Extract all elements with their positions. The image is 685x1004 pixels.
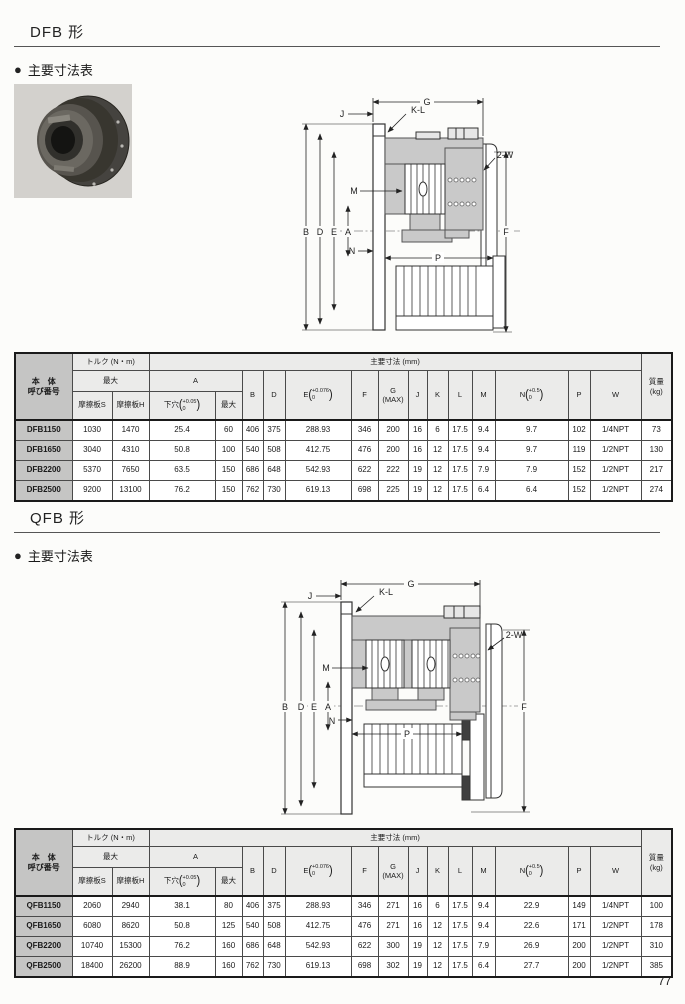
dim-value-cell: 1/4NPT (590, 896, 641, 917)
dim-value-cell: 16 (408, 420, 427, 441)
dim-value-cell: 222 (378, 461, 408, 481)
section-title-qfb: QFB 形 (30, 507, 85, 528)
leader-KL (356, 596, 374, 612)
dim-value-cell: 271 (378, 896, 408, 917)
dim-value-cell: 3040 (72, 441, 112, 461)
dim-value-cell: 698 (351, 481, 378, 502)
dim-value-cell: 1470 (112, 420, 149, 441)
dim-value-cell: 346 (351, 896, 378, 917)
dim-value-cell: 17.5 (448, 896, 472, 917)
dim-value-cell: 10740 (72, 937, 112, 957)
col-header-d: D (263, 847, 285, 897)
dim-value-cell: 17.5 (448, 937, 472, 957)
dim-value-cell: 9.4 (472, 917, 495, 937)
dim-value-cell: 17.5 (448, 420, 472, 441)
dim-value-cell: 406 (242, 420, 263, 441)
dim-value-cell: 288.93 (285, 420, 351, 441)
dim-value-cell: 622 (351, 937, 378, 957)
qfb-table-body: QFB11502060294038.180406375288.933462711… (15, 896, 672, 977)
dim-value-cell: 274 (641, 481, 672, 502)
dim-value-cell: 7650 (112, 461, 149, 481)
col-header-model: 本 体 呼び番号 (15, 353, 72, 420)
dim-value-cell: 19 (408, 957, 427, 978)
dim-label-m: M (350, 186, 358, 196)
dim-value-cell: 119 (568, 441, 590, 461)
dim-label-p: P (435, 253, 441, 263)
dim-value-cell: 17.5 (448, 441, 472, 461)
dim-value-cell: 300 (378, 937, 408, 957)
bolt-detail (448, 128, 478, 139)
table-row: QFB2500184002620088.9160762730619.136983… (15, 957, 672, 978)
dim-value-cell: 9.4 (472, 420, 495, 441)
col-group-max-torque: 最大 (72, 371, 149, 392)
dim-value-cell: 508 (263, 917, 285, 937)
dim-value-cell: 508 (263, 441, 285, 461)
dim-value-cell: 50.8 (149, 917, 215, 937)
col-group-max-torque: 最大 (72, 847, 149, 868)
dim-value-cell: 648 (263, 937, 285, 957)
dim-value-cell: 150 (215, 481, 242, 502)
qfb-cross-section-drawing: G J K-L 2-W B D E A N P M F (276, 572, 534, 824)
table-row: QFB11502060294038.180406375288.933462711… (15, 896, 672, 917)
leader-KL (388, 114, 406, 132)
dim-value-cell: 375 (263, 420, 285, 441)
dim-value-cell: 375 (263, 896, 285, 917)
col-header-a-max: 最大 (215, 868, 242, 897)
dim-label-e: E (311, 702, 317, 712)
dim-label-n: N (329, 716, 336, 726)
dim-value-cell: 200 (378, 441, 408, 461)
model-label: DFB2500 (15, 481, 72, 502)
dim-value-cell: 310 (641, 937, 672, 957)
dim-label-g: G (407, 579, 414, 589)
dim-value-cell: 130 (641, 441, 672, 461)
dim-value-cell: 7.9 (472, 937, 495, 957)
dim-value-cell: 1/2NPT (590, 481, 641, 502)
col-header-friction-s: 摩擦板S (72, 392, 112, 421)
bullet-icon: ● (14, 548, 22, 563)
dim-value-cell: 762 (242, 481, 263, 502)
col-header-p: P (568, 847, 590, 897)
col-group-dimensions: 主要寸法 (mm) (149, 829, 641, 847)
col-header-m: M (472, 847, 495, 897)
dim-value-cell: 6.4 (472, 481, 495, 502)
col-header-n: N(+0.50) (495, 847, 568, 897)
dim-value-cell: 80 (215, 896, 242, 917)
dim-value-cell: 152 (568, 481, 590, 502)
col-header-g: G (MAX) (378, 371, 408, 421)
dim-value-cell: 12 (427, 481, 448, 502)
dim-value-cell: 160 (215, 957, 242, 978)
title-underline (14, 532, 660, 533)
dim-label-j: J (340, 109, 345, 119)
subsection-heading-dimensions: ● 主要寸法表 (14, 546, 93, 565)
dim-value-cell: 540 (242, 917, 263, 937)
dim-value-cell: 6.4 (495, 481, 568, 502)
dim-value-cell: 9200 (72, 481, 112, 502)
dim-label-n: N (349, 246, 356, 256)
dim-value-cell: 7.9 (495, 461, 568, 481)
dim-label-f: F (503, 227, 509, 237)
dim-value-cell: 1/2NPT (590, 957, 641, 978)
dim-value-cell: 412.75 (285, 441, 351, 461)
dim-value-cell: 542.93 (285, 461, 351, 481)
model-label: QFB2200 (15, 937, 72, 957)
col-header-n: N(+0.50) (495, 371, 568, 421)
dim-label-d: D (317, 227, 324, 237)
dfb-cross-section-drawing: G J K-L 2-W B D E A N P M F (298, 88, 526, 346)
dim-label-d: D (298, 702, 305, 712)
dim-value-cell: 17.5 (448, 481, 472, 502)
dim-value-cell: 73 (641, 420, 672, 441)
col-group-torque: トルク (N・m) (72, 829, 149, 847)
dim-value-cell: 63.5 (149, 461, 215, 481)
dim-value-cell: 9.7 (495, 441, 568, 461)
dim-value-cell: 12 (427, 461, 448, 481)
dim-value-cell: 762 (242, 957, 263, 978)
dim-value-cell: 619.13 (285, 481, 351, 502)
col-header-g: G (MAX) (378, 847, 408, 897)
table-row: DFB11501030147025.460406375288.933462001… (15, 420, 672, 441)
dim-value-cell: 150 (215, 461, 242, 481)
dim-value-cell: 730 (263, 957, 285, 978)
table-row: DFB250092001310076.2150762730619.1369822… (15, 481, 672, 502)
model-label: DFB2200 (15, 461, 72, 481)
dim-value-cell: 225 (378, 481, 408, 502)
col-header-friction-h: 摩擦板H (112, 392, 149, 421)
dim-value-cell: 1/2NPT (590, 937, 641, 957)
dim-value-cell: 152 (568, 461, 590, 481)
dim-value-cell: 22.9 (495, 896, 568, 917)
dim-value-cell: 15300 (112, 937, 149, 957)
dim-value-cell: 50.8 (149, 441, 215, 461)
col-group-dimensions: 主要寸法 (mm) (149, 353, 641, 371)
col-header-m: M (472, 371, 495, 421)
dim-value-cell: 171 (568, 917, 590, 937)
col-header-mass: 質量 (kg) (641, 353, 672, 420)
col-header-mass: 質量 (kg) (641, 829, 672, 896)
dim-value-cell: 412.75 (285, 917, 351, 937)
dim-value-cell: 6080 (72, 917, 112, 937)
dim-value-cell: 16 (408, 917, 427, 937)
dim-value-cell: 730 (263, 481, 285, 502)
dim-label-b: B (303, 227, 309, 237)
dim-value-cell: 200 (568, 957, 590, 978)
dim-value-cell: 19 (408, 461, 427, 481)
table-row: DFB22005370765063.5150686648542.93622222… (15, 461, 672, 481)
dim-value-cell: 17.5 (448, 461, 472, 481)
dim-value-cell: 16 (408, 441, 427, 461)
dim-value-cell: 6.4 (472, 957, 495, 978)
dim-value-cell: 25.4 (149, 420, 215, 441)
subsection-label: 主要寸法表 (28, 60, 93, 79)
dim-value-cell: 619.13 (285, 957, 351, 978)
dim-value-cell: 648 (263, 461, 285, 481)
col-header-w: W (590, 847, 641, 897)
dim-value-cell: 8620 (112, 917, 149, 937)
dim-value-cell: 178 (641, 917, 672, 937)
col-header-pilot-hole: 下穴(+0.050) (149, 392, 215, 421)
dim-value-cell: 476 (351, 441, 378, 461)
dim-label-j: J (308, 591, 313, 601)
dim-value-cell: 9.4 (472, 441, 495, 461)
col-header-e: E(+0.0760) (285, 847, 351, 897)
col-header-k: K (427, 847, 448, 897)
dim-value-cell: 271 (378, 917, 408, 937)
dim-value-cell: 88.9 (149, 957, 215, 978)
dim-value-cell: 217 (641, 461, 672, 481)
col-header-f: F (351, 847, 378, 897)
dim-value-cell: 17.5 (448, 917, 472, 937)
dim-value-cell: 100 (641, 896, 672, 917)
dim-value-cell: 6 (427, 420, 448, 441)
dim-value-cell: 9.4 (472, 896, 495, 917)
dim-value-cell: 476 (351, 917, 378, 937)
dim-label-f: F (521, 702, 527, 712)
qfb-dimension-table: 本 体 呼び番号 トルク (N・m) 主要寸法 (mm) 質量 (kg) 最大 … (14, 828, 673, 978)
dim-label-b: B (282, 702, 288, 712)
dim-value-cell: 200 (568, 937, 590, 957)
dim-value-cell: 18400 (72, 957, 112, 978)
col-group-a: A (149, 371, 242, 392)
table-row: DFB16503040431050.8100540508412.75476200… (15, 441, 672, 461)
dim-value-cell: 60 (215, 420, 242, 441)
dim-label-e: E (331, 227, 337, 237)
model-label: DFB1650 (15, 441, 72, 461)
col-header-j: J (408, 371, 427, 421)
dim-value-cell: 16 (408, 896, 427, 917)
page-number: 77 (658, 974, 671, 988)
dim-value-cell: 12 (427, 441, 448, 461)
dim-value-cell: 2060 (72, 896, 112, 917)
dim-value-cell: 1030 (72, 420, 112, 441)
dim-value-cell: 1/2NPT (590, 461, 641, 481)
subsection-label: 主要寸法表 (28, 546, 93, 565)
dim-label-a: A (325, 702, 331, 712)
col-group-torque: トルク (N・m) (72, 353, 149, 371)
dim-value-cell: 12 (427, 917, 448, 937)
dim-value-cell: 160 (215, 937, 242, 957)
col-header-b: B (242, 371, 263, 421)
col-header-pilot-hole: 下穴(+0.050) (149, 868, 215, 897)
dim-value-cell: 288.93 (285, 896, 351, 917)
section-title-dfb: DFB 形 (30, 21, 84, 42)
dim-label-kl: K-L (411, 105, 425, 115)
model-label: QFB2500 (15, 957, 72, 978)
dim-value-cell: 17.5 (448, 957, 472, 978)
col-header-friction-h: 摩擦板H (112, 868, 149, 897)
dim-label-m: M (322, 663, 330, 673)
dim-value-cell: 26200 (112, 957, 149, 978)
dim-value-cell: 4310 (112, 441, 149, 461)
table-row: QFB16506080862050.8125540508412.75476271… (15, 917, 672, 937)
col-header-f: F (351, 371, 378, 421)
col-header-model: 本 体 呼び番号 (15, 829, 72, 896)
dim-label-2w: 2-W (506, 630, 523, 640)
col-header-b: B (242, 847, 263, 897)
dim-value-cell: 7.9 (472, 461, 495, 481)
dim-value-cell: 346 (351, 420, 378, 441)
table-row: QFB2200107401530076.2160686648542.936223… (15, 937, 672, 957)
dim-value-cell: 76.2 (149, 481, 215, 502)
dim-value-cell: 6 (427, 896, 448, 917)
model-label: QFB1150 (15, 896, 72, 917)
dfb-table-body: DFB11501030147025.460406375288.933462001… (15, 420, 672, 501)
dim-value-cell: 12 (427, 937, 448, 957)
dim-value-cell: 622 (351, 461, 378, 481)
col-header-e: E(+0.0760) (285, 371, 351, 421)
dim-value-cell: 149 (568, 896, 590, 917)
dim-value-cell: 102 (568, 420, 590, 441)
dim-value-cell: 686 (242, 461, 263, 481)
col-header-w: W (590, 371, 641, 421)
dim-value-cell: 125 (215, 917, 242, 937)
col-header-j: J (408, 847, 427, 897)
dim-value-cell: 2940 (112, 896, 149, 917)
col-header-a-max: 最大 (215, 392, 242, 421)
dim-value-cell: 540 (242, 441, 263, 461)
dim-value-cell: 5370 (72, 461, 112, 481)
dim-value-cell: 100 (215, 441, 242, 461)
model-label: QFB1650 (15, 917, 72, 937)
bullet-icon: ● (14, 62, 22, 77)
dim-label-p: P (404, 729, 410, 739)
dim-value-cell: 27.7 (495, 957, 568, 978)
dim-value-cell: 76.2 (149, 937, 215, 957)
mounting-flange (373, 124, 385, 330)
dim-value-cell: 38.1 (149, 896, 215, 917)
subsection-heading-dimensions: ● 主要寸法表 (14, 60, 93, 79)
col-header-p: P (568, 371, 590, 421)
dim-value-cell: 686 (242, 937, 263, 957)
mounting-flange (341, 602, 352, 814)
bolt-detail (444, 606, 480, 618)
dim-value-cell: 19 (408, 481, 427, 502)
col-header-d: D (263, 371, 285, 421)
col-group-a: A (149, 847, 242, 868)
dim-value-cell: 698 (351, 957, 378, 978)
dim-value-cell: 1/4NPT (590, 420, 641, 441)
dim-label-kl: K-L (379, 587, 393, 597)
dim-value-cell: 19 (408, 937, 427, 957)
dim-value-cell: 26.9 (495, 937, 568, 957)
model-label: DFB1150 (15, 420, 72, 441)
dim-value-cell: 12 (427, 957, 448, 978)
col-header-friction-s: 摩擦板S (72, 868, 112, 897)
dim-value-cell: 1/2NPT (590, 917, 641, 937)
dim-value-cell: 302 (378, 957, 408, 978)
col-header-l: L (448, 371, 472, 421)
dim-value-cell: 542.93 (285, 937, 351, 957)
col-header-k: K (427, 371, 448, 421)
product-photo-clutch (14, 84, 132, 198)
dim-value-cell: 13100 (112, 481, 149, 502)
col-header-l: L (448, 847, 472, 897)
dfb-dimension-table: 本 体 呼び番号 トルク (N・m) 主要寸法 (mm) 質量 (kg) 最大 … (14, 352, 673, 502)
dim-value-cell: 200 (378, 420, 408, 441)
dim-value-cell: 406 (242, 896, 263, 917)
dim-value-cell: 1/2NPT (590, 441, 641, 461)
dim-value-cell: 9.7 (495, 420, 568, 441)
dim-label-2w: 2-W (497, 150, 514, 160)
dim-label-a: A (345, 227, 351, 237)
title-underline (14, 46, 660, 47)
dim-value-cell: 22.6 (495, 917, 568, 937)
